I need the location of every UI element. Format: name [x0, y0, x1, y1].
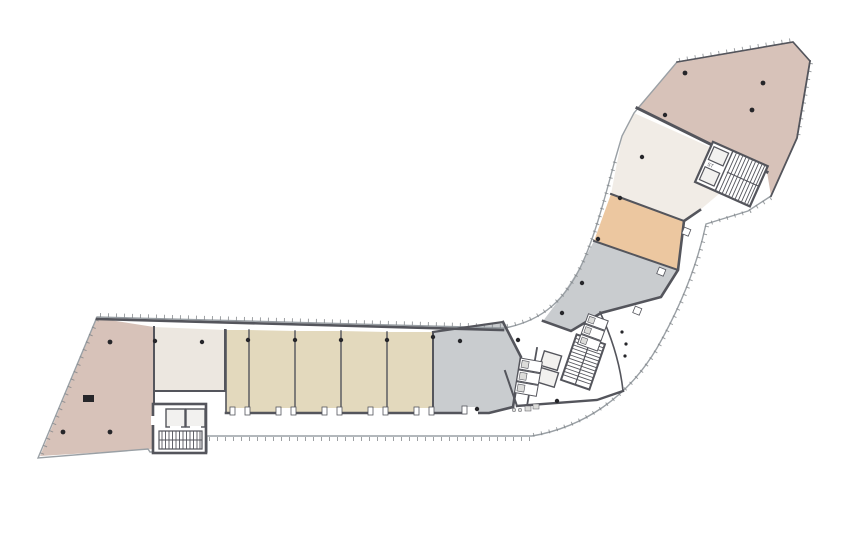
column	[458, 339, 462, 343]
column	[475, 407, 479, 411]
room-unit-1	[226, 330, 249, 412]
room-open-plan-lower-left	[40, 318, 154, 456]
column	[108, 340, 113, 345]
floor-plan-drawing: ST	[0, 0, 865, 537]
column	[153, 339, 157, 343]
toilet-icon	[521, 360, 529, 368]
column	[385, 338, 389, 342]
room-unit-4	[341, 331, 387, 412]
stair-treads-icon	[159, 431, 202, 449]
core-door	[151, 416, 155, 425]
rooms	[40, 42, 810, 456]
column	[560, 311, 564, 315]
sink-icon	[525, 406, 531, 411]
lower-left-core	[151, 404, 206, 453]
floor-mark	[83, 395, 94, 402]
elevator-icon	[166, 409, 185, 427]
room-gray-south	[433, 322, 521, 412]
room-unit-2	[249, 330, 295, 412]
sink-icon	[512, 408, 516, 412]
column	[200, 340, 204, 344]
column	[683, 71, 688, 76]
toilet-icon	[517, 384, 525, 392]
door-stop	[620, 330, 623, 333]
elevator-icon	[540, 351, 562, 371]
floor-plan-canvas: ST	[0, 0, 865, 537]
elevator-icon	[186, 409, 205, 427]
door-stop	[624, 342, 627, 345]
column	[555, 399, 559, 403]
column	[663, 113, 667, 117]
column	[246, 338, 250, 342]
toilet-icon	[519, 372, 527, 380]
column	[640, 155, 644, 159]
column	[339, 338, 343, 342]
sink-icon	[518, 408, 522, 412]
column	[761, 81, 766, 86]
sink-icon	[533, 404, 539, 409]
column	[596, 237, 600, 241]
column	[293, 338, 297, 342]
door-stop	[623, 354, 626, 357]
room-lower-cream	[154, 327, 225, 391]
room-unit-3	[295, 331, 341, 412]
column	[516, 338, 520, 342]
column	[108, 430, 113, 435]
column	[61, 430, 66, 435]
column	[580, 281, 584, 285]
column	[618, 196, 622, 200]
column	[750, 108, 755, 113]
room-unit-5	[387, 332, 433, 412]
column	[431, 335, 435, 339]
